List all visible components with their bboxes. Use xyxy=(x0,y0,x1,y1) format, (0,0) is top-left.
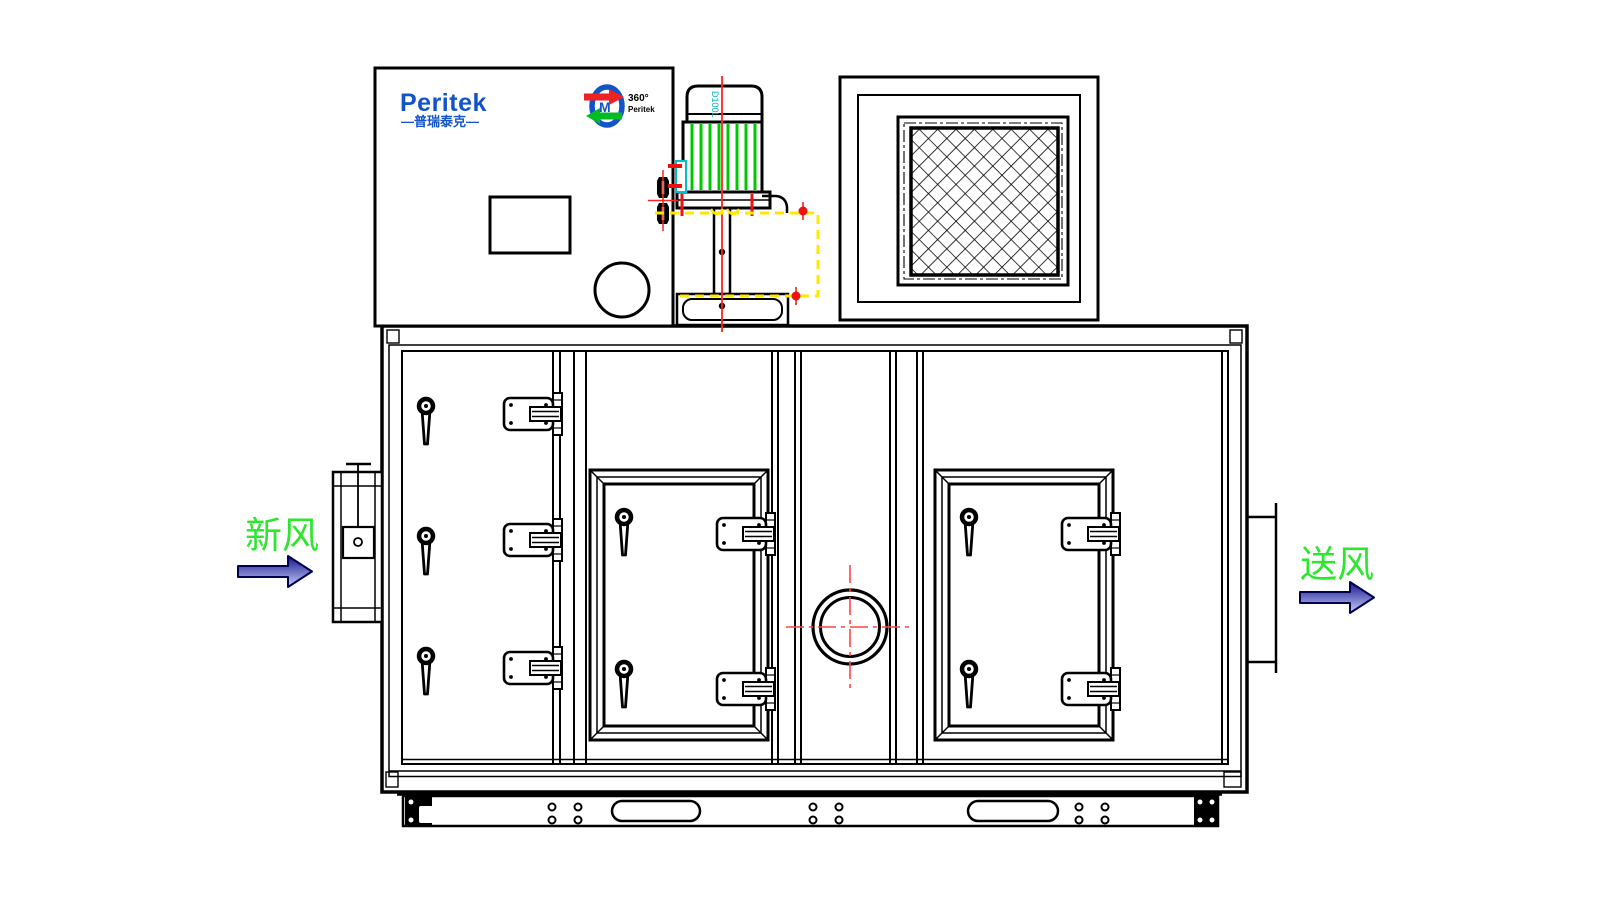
filter-section-box xyxy=(840,77,1098,320)
actuator-shaft xyxy=(354,538,362,546)
panel-latch xyxy=(504,519,562,561)
main-cabinet xyxy=(382,326,1247,792)
cabinet-outer-frame xyxy=(382,326,1247,792)
brand-logo-subtext: —普瑞泰克— xyxy=(401,114,479,129)
wheel-name-text: Peritek xyxy=(628,105,655,114)
forklift-slot xyxy=(612,801,700,821)
base-rail xyxy=(397,794,1222,826)
motor-fan-cowl xyxy=(687,86,762,122)
brand-logo: Peritek —普瑞泰克— xyxy=(400,89,487,129)
dehumidifier-cad-drawing: Peritek —普瑞泰克— M 360° Peritek D100L xyxy=(0,0,1613,897)
right-access-door xyxy=(935,470,1120,740)
panel-cutout-rect xyxy=(490,197,570,253)
supply-air-callout: 送风 xyxy=(1300,544,1374,613)
brand-logo-text: Peritek xyxy=(400,89,487,117)
wheel-degree-text: 360° xyxy=(628,93,649,104)
inlet-damper xyxy=(333,464,382,622)
fresh-air-label: 新风 xyxy=(245,515,319,556)
panel-latch xyxy=(504,647,562,689)
motor-model-label: D100L xyxy=(710,91,720,118)
rail-end-foot xyxy=(1194,796,1218,826)
panel-cutout-circle xyxy=(595,263,649,317)
forklift-slot xyxy=(968,801,1058,821)
center-access-door xyxy=(590,470,775,740)
rail-end-foot xyxy=(405,796,433,826)
supply-air-label: 送风 xyxy=(1300,544,1374,585)
filter-mesh xyxy=(911,128,1058,275)
panel-latch xyxy=(504,393,562,435)
